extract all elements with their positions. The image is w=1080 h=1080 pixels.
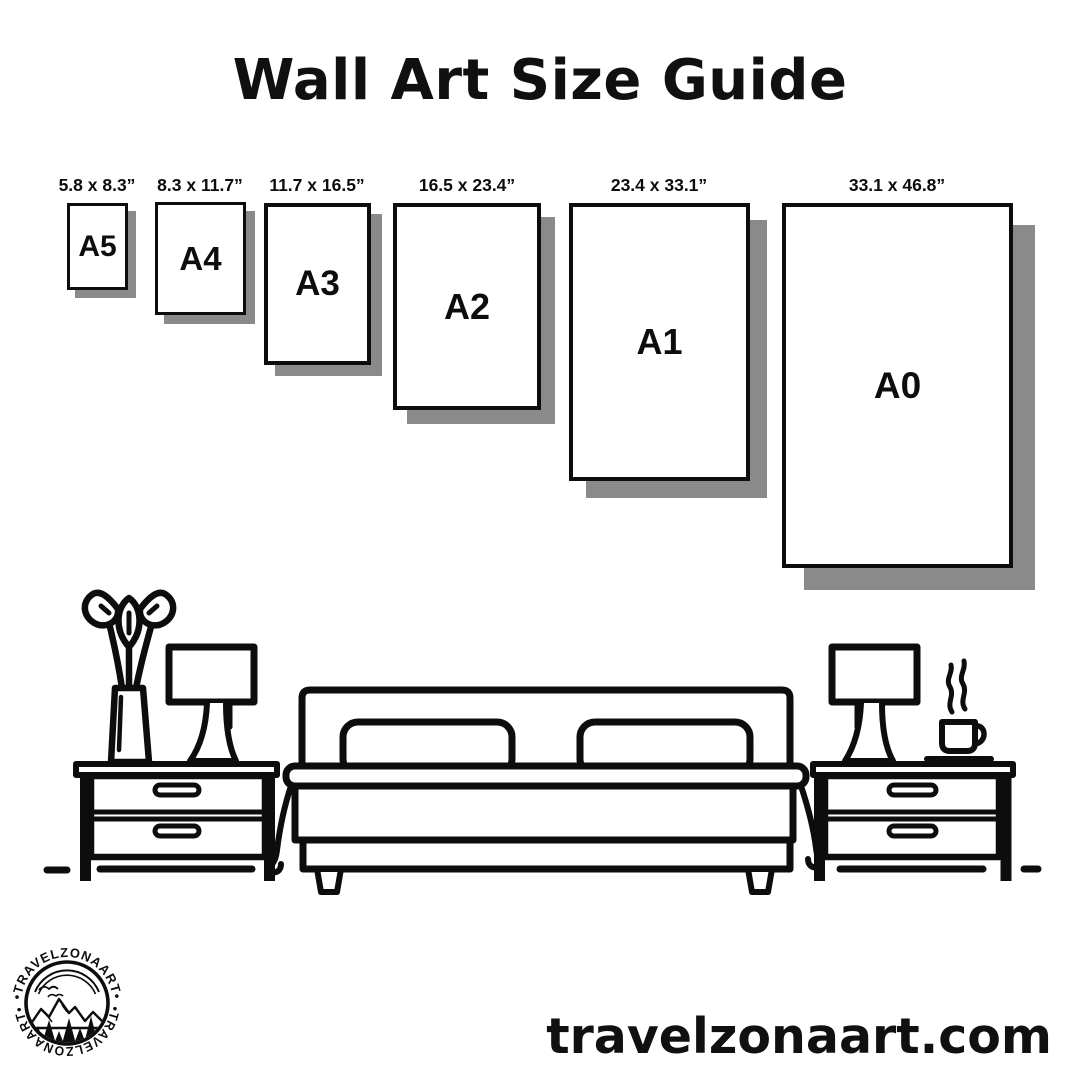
dimension-label-a1: 23.4 x 33.1” <box>611 175 707 196</box>
nightstand-right <box>813 764 1013 881</box>
size-card-a0: A0 <box>782 203 1013 568</box>
size-guide-poster: Wall Art Size Guide 5.8 x 8.3” 8.3 x 11.… <box>0 0 1080 1080</box>
size-card-a3: A3 <box>264 203 371 365</box>
size-card-a1: A1 <box>569 203 750 481</box>
nightstand-left <box>76 764 277 881</box>
lamp-right-icon <box>832 647 917 761</box>
dimension-label-a2: 16.5 x 23.4” <box>419 175 515 196</box>
brand-logo: •TRAVELZONAART• •TRAVELZONAART• <box>2 930 134 1080</box>
lamp-left-icon <box>169 647 254 761</box>
dimension-label-a4: 8.3 x 11.7” <box>157 175 243 196</box>
dimension-label-a5: 5.8 x 8.3” <box>59 175 136 196</box>
size-card-a4: A4 <box>155 202 246 315</box>
coffee-cup-icon <box>927 661 991 759</box>
size-card-a2: A2 <box>393 203 541 410</box>
dimension-label-a3: 11.7 x 16.5” <box>269 175 364 196</box>
plant-icon <box>85 593 173 762</box>
dimension-label-a0: 33.1 x 46.8” <box>849 175 945 196</box>
size-card-a5: A5 <box>67 203 128 290</box>
bed <box>267 690 822 892</box>
